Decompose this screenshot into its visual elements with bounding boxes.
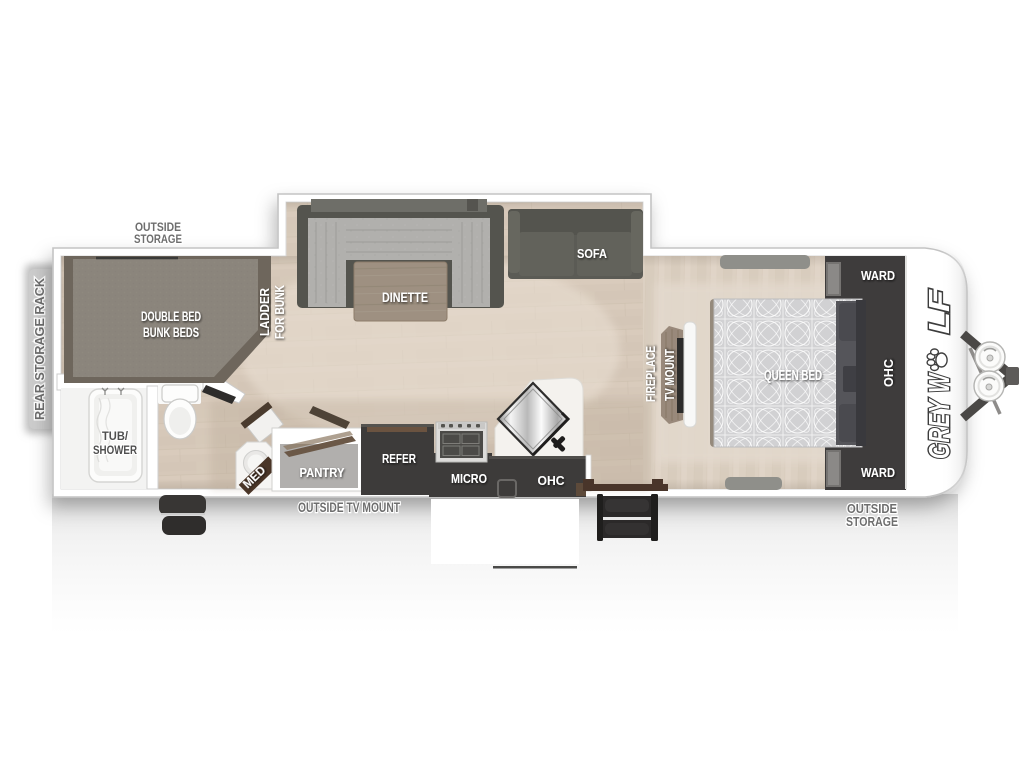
svg-text:DINETTE: DINETTE (382, 290, 428, 305)
svg-text:OHC: OHC (882, 359, 896, 387)
svg-text:TV MOUNT: TV MOUNT (663, 349, 677, 401)
svg-text:PANTRY: PANTRY (300, 465, 345, 480)
svg-text:QUEEN BED: QUEEN BED (764, 368, 822, 384)
svg-text:FOR BUNK: FOR BUNK (273, 285, 287, 339)
svg-text:DOUBLE BED: DOUBLE BED (141, 309, 201, 324)
svg-text:SOFA: SOFA (577, 246, 608, 261)
svg-text:OUTSIDE TV MOUNT: OUTSIDE TV MOUNT (298, 500, 401, 515)
svg-text:OHC: OHC (538, 473, 566, 488)
svg-text:LADDER: LADDER (258, 288, 272, 336)
svg-text:BUNK BEDS: BUNK BEDS (143, 325, 199, 340)
svg-text:REFER: REFER (382, 451, 416, 466)
svg-text:MICRO: MICRO (451, 471, 487, 486)
svg-text:SHOWER: SHOWER (93, 443, 137, 457)
svg-text:WARD: WARD (861, 269, 895, 283)
svg-text:GREY W: GREY W (924, 372, 956, 459)
svg-text:FIREPLACE: FIREPLACE (644, 346, 658, 402)
svg-text:LF: LF (924, 288, 956, 334)
svg-text:TUB/: TUB/ (102, 429, 129, 443)
svg-text:WARD: WARD (861, 466, 895, 480)
svg-text:STORAGE: STORAGE (134, 232, 182, 246)
svg-text:OUTSIDE: OUTSIDE (847, 502, 897, 516)
svg-text:STORAGE: STORAGE (846, 515, 898, 529)
svg-text:REAR STORAGE RACK: REAR STORAGE RACK (33, 278, 47, 420)
